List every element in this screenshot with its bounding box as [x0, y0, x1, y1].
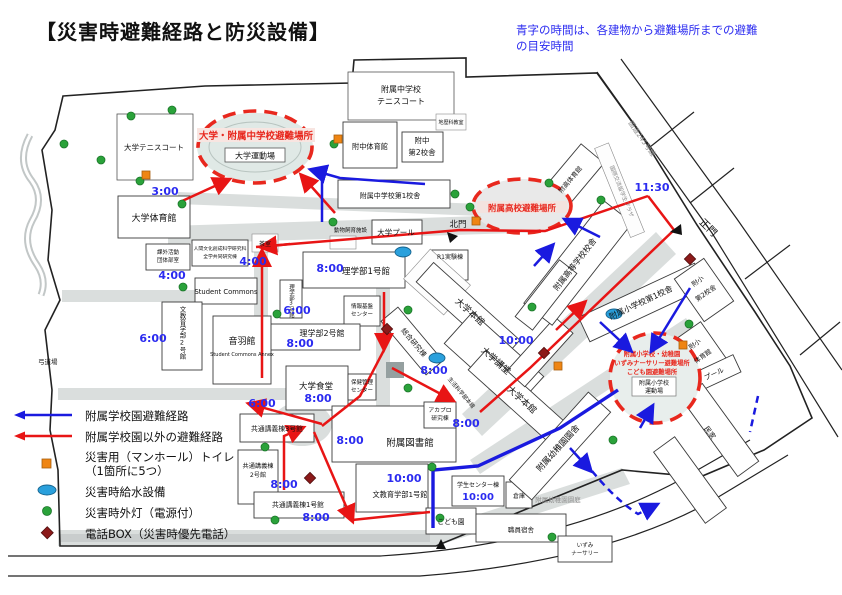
legend-row-other-route: 附属学校園以外の避難経路 [12, 429, 292, 445]
street-light-icon [12, 505, 76, 520]
street-light-icon [404, 306, 412, 314]
street-light-icon [127, 112, 135, 120]
street-light-icon [597, 196, 605, 204]
legend-label-light: 災害時外灯（電源付） [85, 505, 200, 521]
street-light-icon [329, 218, 337, 226]
time-ningen: 4:00 [239, 255, 267, 268]
legend-row-toilet: 災害用（マンホール）トイレ （1箇所に5つ） [12, 450, 292, 479]
label-entei: 附属幼稚園園庭 [535, 495, 581, 504]
label-hoken-2: センター [351, 386, 373, 394]
time-kodo: 10:00 [498, 334, 533, 347]
legend: 附属学校園避難経路 附属学校園以外の避難経路 災害用（マンホール）トイレ （1箇… [12, 408, 292, 548]
legend-label-phone: 電話BOX（災害時優先電話） [85, 526, 235, 542]
label-chireki: 地歴科教室 [438, 119, 463, 126]
label-joho-1: 情報基盤 [351, 302, 374, 310]
note-line-1: 青字の時間は、各建物から避難場所までの避難 [516, 23, 758, 37]
water-icon [12, 484, 76, 499]
label-hoken-1: 保健管理 [351, 378, 374, 386]
label-library: 附属図書館 [386, 437, 434, 449]
evac-label-elem-1: 附属小学校・幼稚園 [624, 349, 681, 358]
phone-box-icon [304, 472, 315, 483]
time-main-gate: 11:30 [634, 181, 669, 194]
label-jhs-b2-2: 第2校舎 [408, 147, 436, 157]
time-bunkyo2: 6:00 [139, 332, 167, 345]
label-joho-2: センター [351, 310, 373, 318]
note-line-2: の目安時間 [516, 39, 574, 53]
label-jhs-gym: 附中体育館 [352, 142, 388, 151]
street-light-icon [179, 283, 187, 291]
label-akapro-1: アカプロ [428, 407, 451, 414]
label-ningen-1: 人間文化創成科学研究科 [194, 245, 247, 252]
time-akapro: 8:00 [452, 417, 480, 430]
label-kagai-1: 課外活動 [157, 248, 180, 256]
toilet-icon [142, 171, 150, 179]
street-light-icon [178, 200, 186, 208]
street-light-icon [60, 140, 68, 148]
label-univ-gym: 大学体育館 [131, 212, 176, 224]
label-otowa: 音羽館 [228, 335, 255, 347]
street-light-icon [428, 463, 436, 471]
label-animal: 動物飼育施設 [334, 226, 368, 234]
street-light-icon [404, 384, 412, 392]
time-library: 8:00 [336, 434, 364, 447]
label-jhs-tennis-1: 附属中学校 [381, 84, 421, 94]
legend-label-toilet-1: 災害用（マンホール）トイレ [85, 450, 235, 464]
evacuation-map-page: 大学・附属中学校避難場所 大学運動場 附属高校避難場所 附属小学校・幼稚園 いず… [0, 0, 842, 595]
label-road245: 国道245号線 [626, 119, 657, 158]
label-souko: 倉庫 [513, 492, 525, 500]
legend-row-phone: 電話BOX（災害時優先電話） [12, 526, 292, 543]
building-joho [344, 296, 380, 326]
label-akapro-2: 研究棟 [431, 414, 449, 422]
time-rigaku1: 8:00 [316, 262, 344, 275]
elem-field-label-1: 附属小学校 [639, 379, 669, 387]
street-light-icon [273, 310, 281, 318]
label-student-commons: Student Commons [194, 288, 258, 296]
time-rigaku2: 8:00 [286, 337, 314, 350]
time-gakusei: 10:00 [462, 492, 494, 503]
street-light-icon [97, 156, 105, 164]
toilet-icon [679, 341, 687, 349]
label-bunkyo2: 文教育学部2号館 [178, 305, 186, 361]
label-jhs-b1: 附属中学校第1校舎 [360, 191, 420, 200]
street-light-icon [685, 320, 693, 328]
legend-label-other-route: 附属学校園以外の避難経路 [85, 429, 223, 445]
time-univ-gym: 3:00 [151, 185, 179, 198]
street-light-icon [451, 190, 459, 198]
legend-label-school-route: 附属学校園避難経路 [85, 408, 189, 424]
time-kagai: 4:00 [158, 269, 186, 282]
legend-label-water: 災害時給水設備 [85, 484, 166, 500]
blue-arrow-icon [12, 409, 76, 424]
street-light-icon [466, 203, 474, 211]
time-sogo: 8:00 [420, 364, 448, 377]
water-icon [429, 353, 445, 363]
label-rigaku1: 理学部1号館 [342, 266, 390, 277]
note-blue-times: 青字の時間は、各建物から避難場所までの避難 の目安時間 [516, 22, 838, 54]
label-gakusei: 学生センター棟 [457, 481, 499, 489]
label-kyudo: 弓道場 [38, 357, 58, 366]
phone-box-icon [12, 526, 76, 543]
time-bunkyo1: 10:00 [386, 472, 421, 485]
street-light-icon [548, 533, 556, 541]
toilet-icon [472, 217, 480, 225]
label-shokuin: 職員宿舎 [508, 525, 535, 534]
label-r1lab: R1実験棟 [437, 253, 463, 261]
water-icon [395, 247, 411, 257]
time-shokudo: 8:00 [304, 392, 332, 405]
legend-row-school-route: 附属学校園避難経路 [12, 408, 292, 424]
elem-field-label-2: 運動場 [645, 387, 663, 395]
legend-row-water: 災害時給水設備 [12, 484, 292, 500]
creek [23, 135, 43, 295]
evac-label-high-school: 附属高校避難場所 [488, 203, 557, 214]
label-jhs-b2-1: 附中 [415, 135, 430, 145]
toilet-icon [554, 362, 562, 370]
evac-label-elem-2: いずみナーサリー避難場所 [614, 358, 690, 367]
time-kyotsu1: 8:00 [302, 511, 330, 524]
label-ningen-2: 全学共同研究棟 [203, 253, 237, 260]
label-kagai-2: 団体部室 [157, 256, 180, 264]
univ-field-label: 大学運動場 [235, 151, 275, 161]
label-sei-gate: 正門 [697, 217, 720, 240]
building-izumi [558, 536, 612, 562]
evac-label-elem-3: こども園避難場所 [627, 367, 678, 376]
label-otowa-en: Student Commons Annex [210, 352, 274, 358]
toilet-icon [12, 457, 76, 472]
label-shokudo: 大学食堂 [299, 381, 333, 392]
street-light-icon [609, 436, 617, 444]
label-univ-pool: 大学プール [377, 227, 415, 237]
building-minka-2 [654, 437, 727, 523]
label-bunkyo1: 文教育学部1号館 [373, 490, 428, 499]
label-izumi-2: ナーサリー [571, 550, 598, 557]
legend-label-toilet-2: （1箇所に5つ） [85, 464, 235, 478]
building-hoken [348, 374, 376, 400]
legend-row-light: 災害時外灯（電源付） [12, 505, 292, 521]
label-kita-gate: 北門 [449, 220, 466, 230]
building-kagai [146, 244, 190, 270]
toilet-icon [334, 135, 342, 143]
street-light-icon [168, 106, 176, 114]
evac-label-univ-junior: 大学・附属中学校避難場所 [199, 130, 314, 142]
street-light-icon [528, 303, 536, 311]
label-jhs-tennis-2: テニスコート [377, 97, 425, 106]
red-arrow-icon [12, 430, 76, 445]
time-rigaku3: 6:00 [283, 304, 311, 317]
building-akapro [424, 402, 456, 428]
page-title: 【災害時避難経路と防災設備】 [36, 16, 330, 45]
label-chashitsu: 茶室 [259, 240, 271, 248]
label-univ-tennis: 大学テニスコート [124, 142, 184, 152]
label-kodomoen: こども園 [437, 518, 464, 526]
label-izumi-1: いずみ [577, 541, 594, 549]
building-jhs-tennis [348, 72, 454, 120]
street-light-icon [545, 179, 553, 187]
